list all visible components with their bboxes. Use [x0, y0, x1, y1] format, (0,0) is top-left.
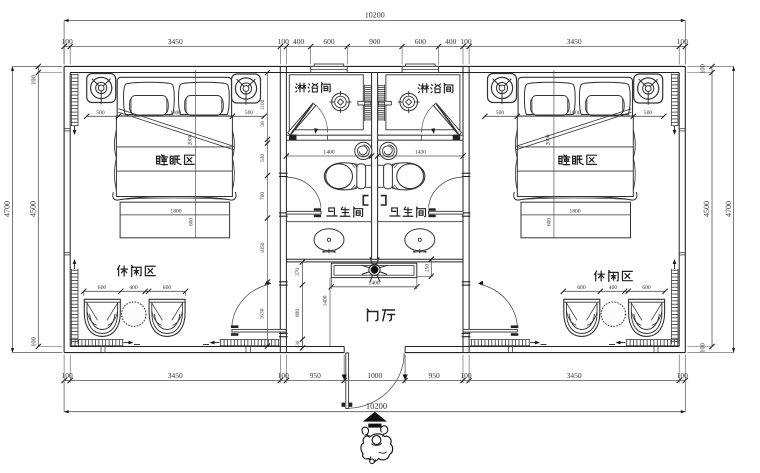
svg-text:10200: 10200: [366, 401, 387, 411]
svg-text:4500: 4500: [702, 201, 711, 217]
svg-text:600: 600: [547, 218, 553, 226]
svg-text:1630: 1630: [260, 308, 266, 319]
svg-text:600: 600: [98, 285, 107, 291]
svg-text:4700: 4700: [3, 201, 12, 217]
svg-text:500: 500: [496, 110, 505, 116]
svg-text:100: 100: [700, 343, 707, 353]
svg-text:2000: 2000: [546, 134, 552, 145]
svg-text:100: 100: [278, 371, 290, 380]
svg-text:1000: 1000: [367, 371, 382, 380]
svg-text:1800: 1800: [569, 110, 580, 116]
svg-text:950: 950: [310, 371, 322, 380]
svg-text:400: 400: [129, 285, 138, 291]
svg-text:1430: 1430: [415, 150, 426, 156]
svg-text:400: 400: [445, 37, 457, 46]
svg-text:100: 100: [61, 37, 73, 46]
svg-text:1800: 1800: [170, 110, 181, 116]
svg-text:500: 500: [644, 110, 653, 116]
svg-text:950: 950: [428, 371, 440, 380]
svg-text:100: 100: [677, 371, 689, 380]
svg-text:3450: 3450: [168, 37, 183, 46]
svg-text:1400: 1400: [368, 280, 379, 286]
svg-text:1050: 1050: [260, 242, 266, 253]
svg-text:890: 890: [295, 309, 301, 317]
svg-text:700: 700: [260, 192, 266, 200]
svg-text:4700: 4700: [724, 201, 733, 217]
svg-text:1800: 1800: [569, 209, 580, 215]
svg-text:1800: 1800: [170, 209, 181, 215]
svg-text:500: 500: [96, 110, 105, 116]
svg-text:600: 600: [188, 218, 194, 226]
svg-text:1100: 1100: [260, 99, 266, 110]
svg-text:400: 400: [293, 37, 305, 46]
svg-text:100: 100: [700, 64, 707, 74]
svg-text:600: 600: [577, 285, 586, 291]
svg-text:1400: 1400: [323, 150, 334, 156]
svg-text:500: 500: [245, 110, 254, 116]
svg-text:3450: 3450: [168, 371, 183, 380]
svg-text:250: 250: [424, 264, 430, 272]
svg-text:100: 100: [61, 371, 73, 380]
svg-text:370: 370: [295, 268, 301, 276]
svg-text:100: 100: [278, 37, 290, 46]
svg-text:100: 100: [460, 371, 472, 380]
svg-text:3450: 3450: [567, 37, 582, 46]
svg-text:1400: 1400: [323, 295, 329, 306]
svg-text:130: 130: [295, 340, 301, 348]
svg-text:600: 600: [415, 37, 427, 46]
svg-text:100: 100: [460, 37, 472, 46]
svg-text:100: 100: [677, 37, 689, 46]
svg-text:530: 530: [260, 154, 266, 162]
svg-text:100: 100: [30, 75, 37, 85]
svg-text:400: 400: [609, 285, 618, 291]
svg-text:600: 600: [163, 285, 172, 291]
svg-text:600: 600: [642, 285, 651, 291]
svg-text:10200: 10200: [365, 10, 385, 19]
svg-text:4500: 4500: [28, 201, 37, 217]
svg-text:600: 600: [323, 37, 335, 46]
svg-text:2000: 2000: [188, 134, 194, 145]
svg-text:900: 900: [369, 37, 381, 46]
svg-text:100: 100: [30, 337, 37, 347]
svg-text:50: 50: [260, 121, 266, 127]
svg-text:3450: 3450: [567, 371, 582, 380]
